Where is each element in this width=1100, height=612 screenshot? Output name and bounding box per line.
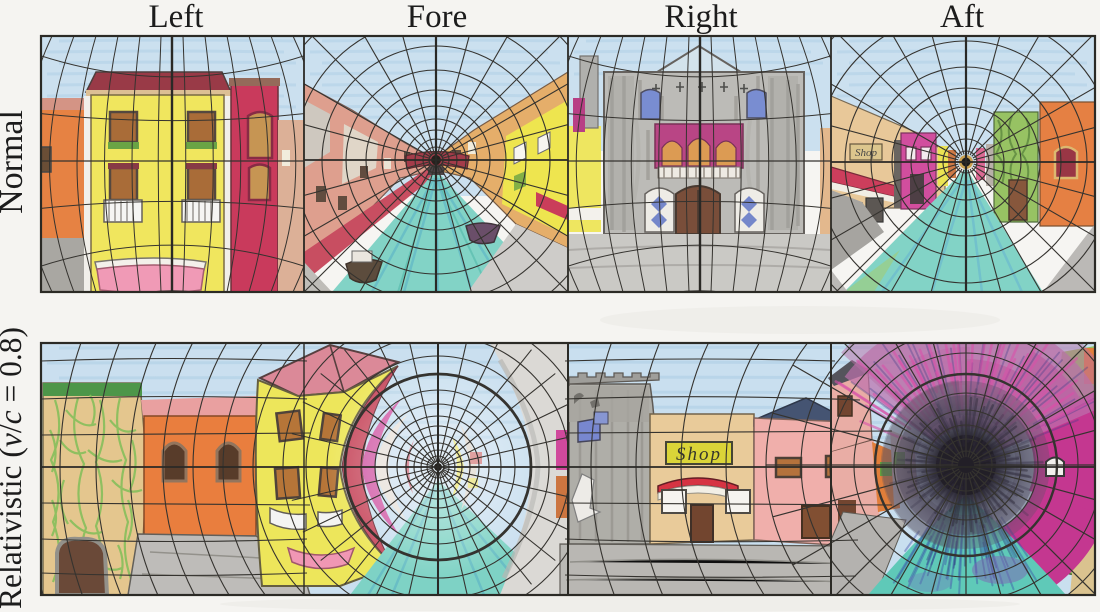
svg-text:Left: Left — [149, 0, 204, 35]
svg-text:Normal: Normal — [0, 110, 30, 214]
svg-text:Aft: Aft — [940, 0, 984, 35]
svg-text:Relativistic (v/c = 0.8): Relativistic (v/c = 0.8) — [0, 327, 28, 609]
svg-text:Fore: Fore — [407, 0, 468, 35]
svg-text:Right: Right — [664, 0, 737, 35]
